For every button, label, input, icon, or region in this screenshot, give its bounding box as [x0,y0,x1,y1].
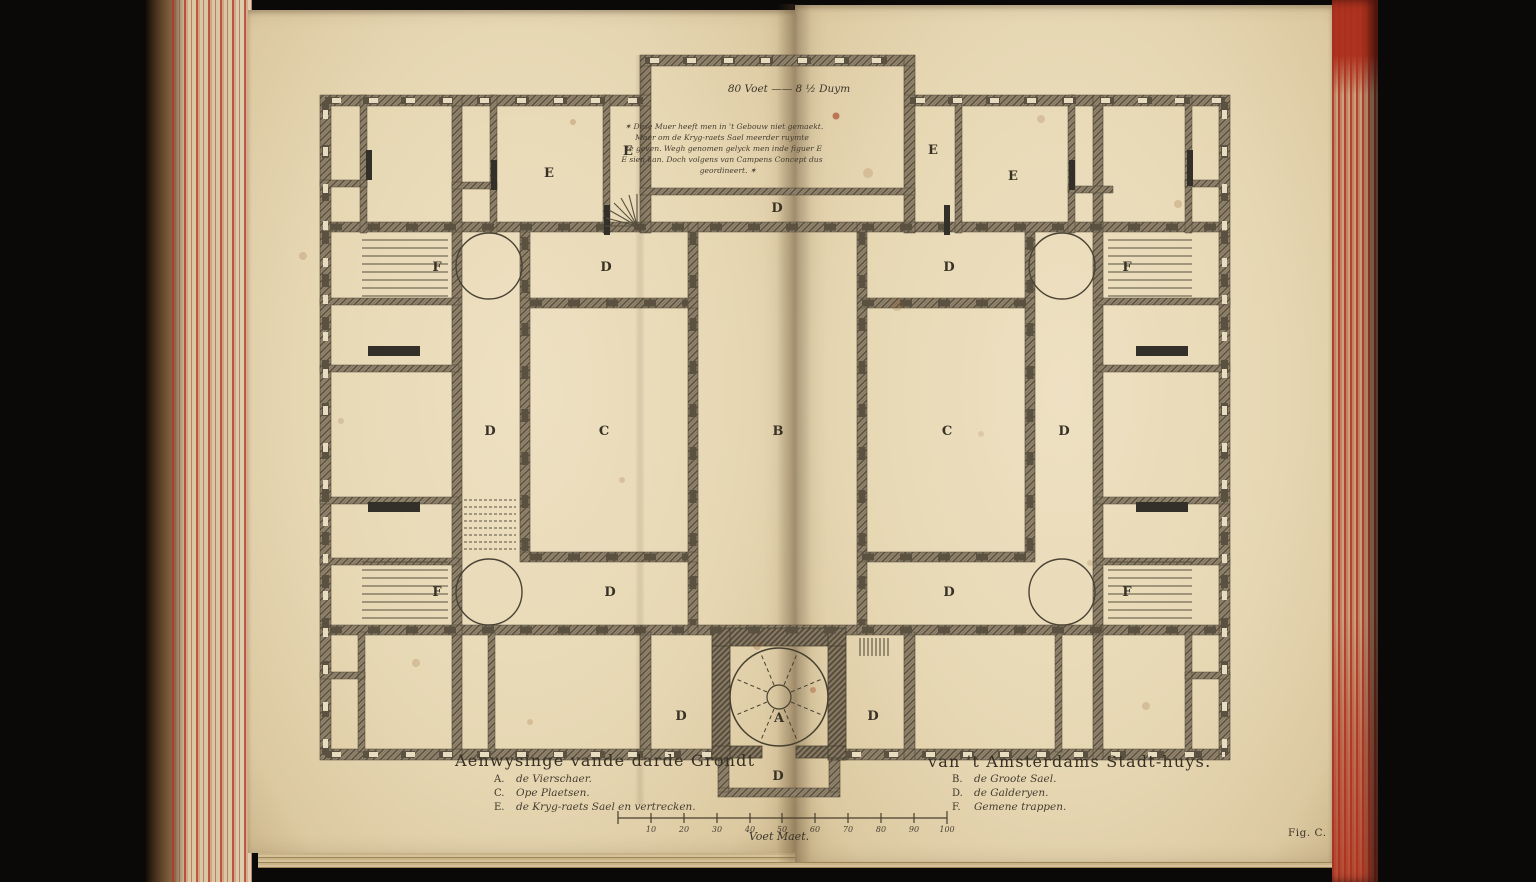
scale-tick: 20 [678,825,689,834]
top-scale-note: 80 Voet —— 8 ½ Duym [728,83,850,95]
dome-circle [1029,233,1095,299]
scale-tick: 10 [646,825,656,834]
note-line: E sien kan. Doch volgens van Campens Con… [620,155,822,164]
page-crease [635,55,645,805]
legend-text: de Groote Sael. [974,773,1056,785]
stair-right-wing-top [1108,240,1192,296]
scale-bar-label: Voet Maet. [749,830,809,843]
dome-circle [456,559,522,625]
room-letter: D [943,585,954,600]
legend-text: de Vierschaer. [516,773,592,785]
room-letter: D [771,201,782,216]
legend-key: A. [493,774,504,785]
legend-text: Ope Plaetsen. [516,787,590,799]
vierschaer-rotunda [730,648,828,746]
scale-tick: 100 [939,825,954,834]
legend-right: van 't Amsterdams Stadt-huys. B. de Groo… [927,752,1211,813]
scale-bar: 10 20 30 40 50 60 70 80 90 100 Voet Maet… [618,811,955,843]
legend-left-title: Aenwysinge vande darde Grondt [454,751,755,770]
room-letter: E [1008,169,1018,184]
dome-circle [1029,559,1095,625]
stair-gallery-left [464,500,516,549]
note-line: geordineert. ✶ [700,166,757,175]
scale-tick: 30 [712,825,722,834]
legend-text: de Galderyen. [974,787,1048,799]
room-letter: D [943,260,954,275]
room-letter: D [867,709,878,724]
scale-tick: 80 [876,825,886,834]
stair-bottom-right [860,638,888,656]
room-letter: D [675,709,686,724]
dome-circle [456,233,522,299]
scale-tick: 90 [909,825,919,834]
legend-text: de Kryg-raets Sael en vertrecken. [516,801,696,813]
room-letter: D [1058,424,1069,439]
stair-right-wing-bottom [1108,562,1192,618]
legend-text: Gemene trappen. [974,801,1066,813]
floor-plan-engraving: E E E E D D D F F D C B C D F F D D D A … [0,0,1536,882]
scale-tick: 60 [810,825,820,834]
legend-key: B. [952,774,963,785]
note-line: Maer om de Kryg-raets Sael meerder ruymt… [634,133,809,142]
room-letter: B [773,424,784,439]
legend-key: E. [494,802,504,813]
room-letter: F [1122,585,1132,600]
book-scan-photo: E E E E D D D F F D C B C D F F D D D A … [0,0,1536,882]
legend-right-title: van 't Amsterdams Stadt-huys. [927,752,1211,771]
legend-key: D. [952,788,963,799]
scale-tick: 70 [843,825,853,834]
room-letter: E [928,143,938,158]
room-letter: D [604,585,615,600]
room-letter: C [942,424,952,439]
room-letter: E [544,166,554,181]
legend-left: Aenwysinge vande darde Grondt A. de Vier… [454,751,755,813]
room-letter: C [599,424,609,439]
room-letter: A [773,711,785,726]
legend-key: F. [952,802,961,813]
room-letter: D [484,424,495,439]
room-letter: F [432,585,442,600]
note-line: ✶ Dese Muer heeft men in 't Gebouw niet … [625,122,824,131]
room-letter: F [1122,260,1132,275]
note-line: te geven. Wegh genomen gelyck men inde f… [626,144,822,153]
rotunda-radial-spokes [736,654,822,740]
room-letter: D [600,260,611,275]
figure-label: Fig. C. [1288,827,1327,839]
legend-key: C. [494,788,504,799]
room-letter: F [432,260,442,275]
room-letter: D [772,769,783,784]
